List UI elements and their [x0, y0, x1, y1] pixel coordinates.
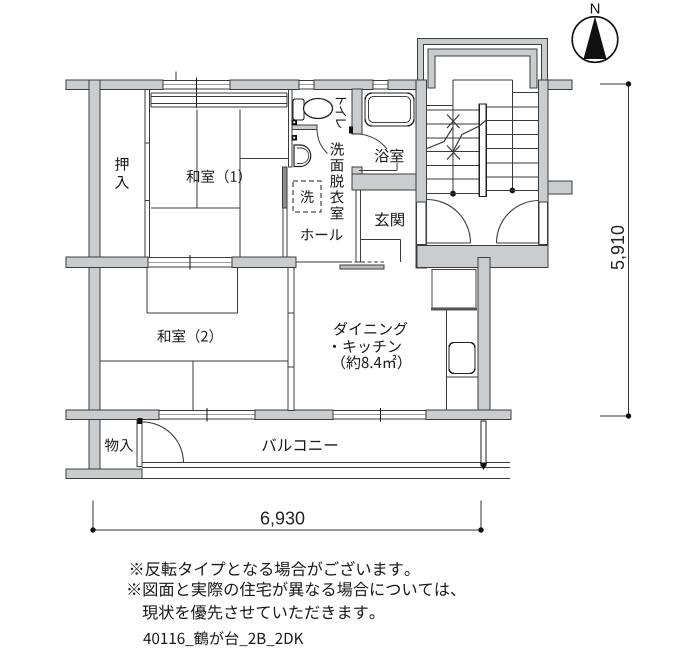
svg-text:6,930: 6,930 [260, 509, 305, 529]
svg-text:5,910: 5,910 [608, 225, 628, 270]
svg-text:N: N [590, 1, 601, 18]
